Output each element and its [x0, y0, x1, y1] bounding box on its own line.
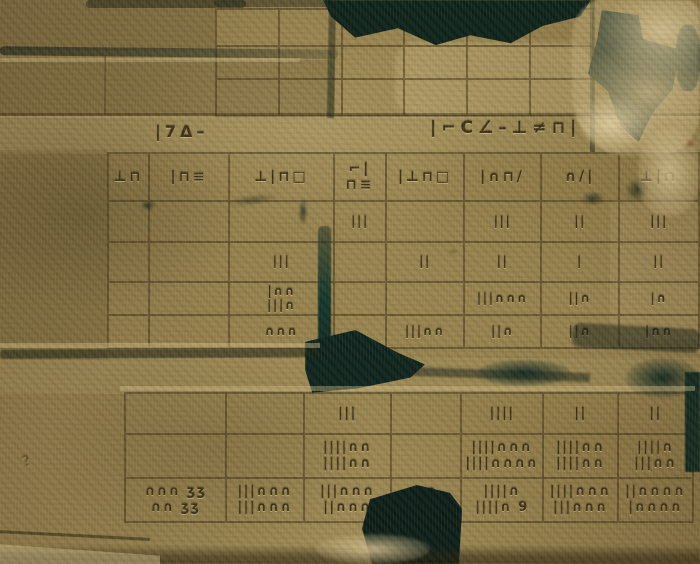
grid-row [217, 10, 594, 47]
numeral-cell [150, 283, 230, 316]
numeral-cell: ||||∩ |||∩∩ [619, 435, 694, 479]
numeral-row: ||| || || | || [109, 243, 700, 283]
numeral-cell [227, 435, 305, 479]
numeral-cell: ||∩ [542, 316, 620, 349]
numeral-cell: |||∩∩∩ |||∩∩∩ [227, 479, 305, 523]
numeral-cell: ||||∩∩∩ |||∩∩∩ [544, 479, 619, 523]
grid-cell [531, 80, 594, 117]
numeral-cell: |||∩∩ [387, 316, 465, 349]
numeral-cell: || [619, 394, 694, 435]
numeral-cell: ||| [335, 202, 387, 243]
numeral-cell [392, 394, 462, 435]
grid-cell [468, 47, 531, 80]
numeral-cell: ||||∩∩ ||||∩∩ [305, 435, 392, 479]
hieroglyph-inscription-left: |7Δ– [155, 122, 208, 141]
grid-cell [405, 80, 468, 117]
grid-cell [468, 80, 531, 117]
numeral-cell: || [620, 243, 700, 283]
numeral-cell: |||| [462, 394, 544, 435]
grid-cell [280, 47, 343, 80]
numeral-cell: ||| [305, 394, 392, 435]
grid-cell [468, 10, 531, 47]
numeral-row: |∩∩ |||∩ |||∩∩∩ ||∩ |∩ [109, 283, 700, 316]
numeral-cell: |∩∩ [620, 316, 700, 349]
header-cell: |⊥⊓□ [387, 154, 465, 202]
numeral-cell: |∩ [620, 283, 700, 316]
numeral-cell [335, 316, 387, 349]
header-cell: ⌐|⊓≡ [335, 154, 387, 202]
numeral-cell: || [387, 243, 465, 283]
numeral-cell [109, 202, 150, 243]
grid-cell [343, 10, 406, 47]
grid-cell [531, 47, 594, 80]
numeral-cell: ||| [620, 202, 700, 243]
numeral-cell [227, 394, 305, 435]
hieroglyph-inscription-right: |⌐C∠–⊥≠⊓| [430, 118, 581, 138]
numeral-row: ||| |||| || || [126, 394, 694, 435]
numeral-cell: ||||∩∩∩ ||||∩∩∩∩ [462, 435, 544, 479]
numeral-cell: ||| [465, 202, 542, 243]
numeral-cell: ∩∩∩ ʒʒ ∩∩ ʒʒ [126, 479, 227, 523]
header-cell: |∩⊓/ [465, 154, 542, 202]
numeral-row: ||| ||| || ||| [109, 202, 700, 243]
numeral-cell: ||||∩ ||||∩ 9 [462, 479, 544, 523]
numeral-cell: || [544, 394, 619, 435]
grid-cell [343, 47, 406, 80]
numeral-cell: |∩∩ |||∩ [230, 283, 335, 316]
grid-cell [280, 80, 343, 117]
numeral-cell [335, 243, 387, 283]
numeral-cell: || [465, 243, 542, 283]
grid-cell [531, 10, 594, 47]
grid-cell [280, 10, 343, 47]
header-cell: ⊥⊓ [109, 154, 150, 202]
seam-highlight-lower [120, 386, 695, 391]
numeral-cell [230, 202, 335, 243]
numeral-cell: ||∩ [465, 316, 542, 349]
seam-highlight-left [0, 343, 320, 348]
numeral-cell [387, 283, 465, 316]
numeral-cell [335, 283, 387, 316]
numeral-cell [126, 394, 227, 435]
numeral-cell: |||∩∩∩ [465, 283, 542, 316]
numeral-cell [109, 283, 150, 316]
bottom-numeral-table: ||| |||| || || ||||∩∩ ||||∩∩ ||||∩∩∩ |||… [124, 392, 694, 523]
numeral-cell: ||∩∩∩∩ |∩∩∩∩ [619, 479, 694, 523]
numeral-cell: ||| [230, 243, 335, 283]
top-blank-grid [215, 8, 594, 117]
header-cell: ⊥|⊓ [620, 154, 700, 202]
grid-cell [217, 10, 280, 47]
numeral-cell: ||||∩∩ ||||∩∩ [544, 435, 619, 479]
header-cell: ⊥|⊓□ [230, 154, 335, 202]
header-cell: ∩/| [542, 154, 620, 202]
numeral-cell: ||∩ [542, 283, 620, 316]
grid-cell [405, 10, 468, 47]
numeral-row: ||||∩∩ ||||∩∩ ||||∩∩∩ ||||∩∩∩∩ ||||∩∩ ||… [126, 435, 694, 479]
grid-row [217, 47, 594, 80]
header-cell: |⊓≡ [150, 154, 230, 202]
numeral-cell: |||∩∩∩ ||∩∩∩ [305, 479, 392, 523]
grid-cell [217, 47, 280, 80]
numeral-cell: | [542, 243, 620, 283]
numeral-cell [150, 243, 230, 283]
numeral-cell: ∩∩ |∩∩ [392, 479, 462, 523]
photo-stone-wall: |7Δ– |⌐C∠–⊥≠⊓| ? ⊥⊓ |⊓≡ ⊥|⊓□ ⌐|⊓≡ |⊥⊓□ |… [0, 0, 700, 564]
grid-cell [343, 80, 406, 117]
grid-row [217, 80, 594, 117]
numeral-cell [392, 435, 462, 479]
numeral-cell [126, 435, 227, 479]
numeral-cell: || [542, 202, 620, 243]
numeral-cell [109, 243, 150, 283]
header-row: ⊥⊓ |⊓≡ ⊥|⊓□ ⌐|⊓≡ |⊥⊓□ |∩⊓/ ∩/| ⊥|⊓ [109, 154, 700, 202]
numeral-cell [150, 202, 230, 243]
grid-cell [217, 80, 280, 117]
numeral-row: ∩∩∩ ʒʒ ∩∩ ʒʒ |||∩∩∩ |||∩∩∩ |||∩∩∩ ||∩∩∩ … [126, 479, 694, 523]
grid-cell [405, 47, 468, 80]
main-offering-table: ⊥⊓ |⊓≡ ⊥|⊓□ ⌐|⊓≡ |⊥⊓□ |∩⊓/ ∩/| ⊥|⊓ ||| |… [107, 152, 700, 349]
numeral-cell [387, 202, 465, 243]
